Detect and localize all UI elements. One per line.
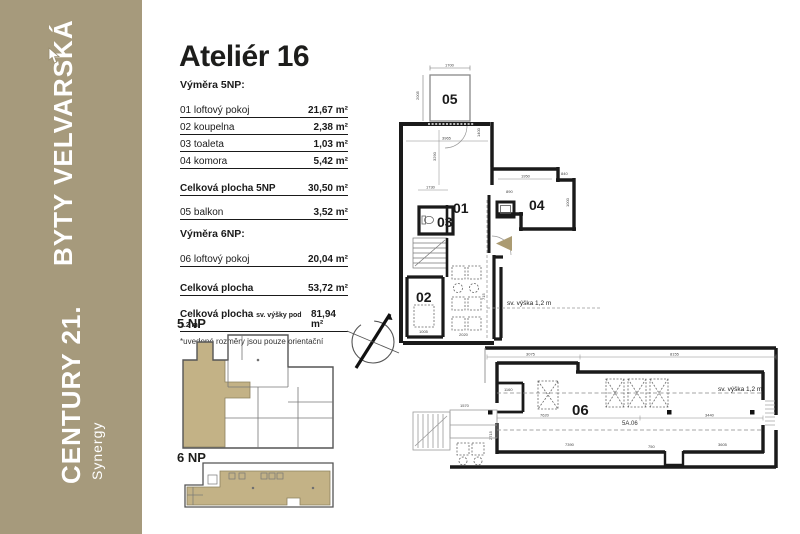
- column: [667, 410, 672, 415]
- north-compass-icon: [342, 306, 406, 374]
- room-02-label: 02: [416, 289, 432, 305]
- dim-label: 1160: [504, 387, 513, 392]
- mini-5np-label: 5 NP: [177, 316, 206, 331]
- dim-label: 840: [561, 171, 568, 176]
- row-label: Celková plocha: [180, 284, 253, 294]
- table-row-total: Celková plocha 53,72 m²: [180, 282, 348, 296]
- table-row-total-5np: Celková plocha 5NP 30,50 m²: [180, 182, 348, 196]
- dim-label: 1570: [460, 403, 470, 408]
- dim-label: 2005: [415, 90, 420, 100]
- dim-label: 1005: [419, 329, 429, 334]
- dim-label: 3290: [432, 151, 437, 161]
- dim-label: 1000: [565, 197, 570, 207]
- furniture-dashed: [452, 266, 481, 330]
- room-05-label: 05: [442, 91, 458, 107]
- row-label: Celková plocha 5NP: [180, 184, 276, 194]
- dim-label: 2715: [488, 430, 493, 440]
- row-value: 20,04 m²: [308, 255, 348, 265]
- table-row: 02 koupelna 2,38 m²: [180, 121, 348, 135]
- row-value: 53,72 m²: [308, 284, 348, 294]
- mini-floorplan-6np: [183, 455, 343, 515]
- floorplan-5np: 1700 2005 05 3965 3290 1400 1730 01 04 1…: [390, 55, 605, 355]
- section-heading-5np: Výměra 5NP:: [180, 79, 348, 91]
- room-04-label: 04: [529, 197, 545, 213]
- dim-label: 1730: [426, 185, 436, 190]
- area-table: Výměra 5NP: 01 loftový pokoj 21,67 m² 02…: [180, 79, 348, 346]
- room-01-label: 01: [453, 200, 469, 216]
- section-heading-6np: Výměra 6NP:: [180, 228, 348, 240]
- stairs-5np: [413, 238, 447, 268]
- entry-arrow: [496, 236, 512, 251]
- unit-code-label: 5A.06: [622, 421, 638, 427]
- dim-label: 7390: [565, 442, 575, 447]
- room-06-walls: [497, 362, 764, 466]
- row-value: 21,67 m²: [308, 106, 348, 116]
- dim-label: 3440: [705, 413, 715, 418]
- row-value: 3,52 m²: [314, 208, 348, 218]
- furniture-dashed-6np: [457, 443, 484, 465]
- table-row-balcony: 05 balkon 3,52 m²: [180, 206, 348, 220]
- height-note-5np: sv. výška 1,2 m: [507, 300, 551, 307]
- mouse-cursor-icon: [48, 48, 62, 64]
- height-note-6np: sv. výška 1,2 m: [718, 386, 762, 393]
- column: [488, 410, 493, 415]
- row-value: 5,42 m²: [314, 157, 348, 167]
- highlight-unit-5np: [183, 342, 250, 447]
- dim-label: 750: [648, 444, 655, 449]
- project-name: BYTY VELVARSKÁ: [50, 38, 76, 266]
- flyer-page: { "sidebar": { "bg": "#a69a7c", "project…: [0, 0, 800, 534]
- dim-label: 1950: [521, 174, 531, 179]
- row-value: 1,03 m²: [314, 140, 348, 150]
- room-06-label: 06: [572, 402, 589, 419]
- room-03-label: 03: [437, 214, 453, 230]
- dim-label: 3605: [718, 442, 728, 447]
- row-value: 30,50 m²: [308, 184, 348, 194]
- page-title: Ateliér 16: [179, 40, 309, 74]
- table-row: 04 komora 5,42 m²: [180, 155, 348, 169]
- brand-name: CENTURY 21.: [58, 314, 84, 484]
- window-hatch: [765, 401, 775, 425]
- row-label: 06 loftový pokoj: [180, 255, 250, 265]
- row-label: 04 komora: [180, 157, 227, 167]
- brand-sidebar: BYTY VELVARSKÁ CENTURY 21. Synergy: [0, 0, 142, 534]
- table-row: 06 loftový pokoj 20,04 m²: [180, 253, 348, 267]
- row-label: 03 toaleta: [180, 140, 224, 150]
- stairs-6np: [413, 410, 497, 450]
- dim-label: 890: [506, 189, 513, 194]
- highlight-unit-6np: [187, 471, 330, 505]
- row-label: 05 balkon: [180, 208, 223, 218]
- row-label: 02 koupelna: [180, 123, 235, 133]
- dim-label: 3075: [526, 352, 536, 357]
- table-row: 01 loftový pokoj 21,67 m²: [180, 104, 348, 118]
- dim-label: 715: [481, 293, 486, 300]
- row-value: 2,38 m²: [314, 123, 348, 133]
- table-row: 03 toaleta 1,03 m²: [180, 138, 348, 152]
- column: [750, 410, 755, 415]
- mini-floorplan-5np: [180, 330, 345, 455]
- floorplan-6np: 3075 8155 1160 7620 3440 7390 750: [400, 335, 800, 475]
- room-02-walls: [407, 277, 443, 337]
- dim-label: 8155: [670, 352, 680, 357]
- dim-label: 1400: [476, 127, 481, 137]
- dim-label: 1700: [445, 63, 455, 68]
- dim-label: 3965: [442, 136, 452, 141]
- row-label: 01 loftový pokoj: [180, 106, 250, 116]
- brand-subtitle: Synergy: [90, 420, 104, 480]
- dim-label: 7620: [540, 413, 550, 418]
- tables-dashed: [538, 379, 668, 409]
